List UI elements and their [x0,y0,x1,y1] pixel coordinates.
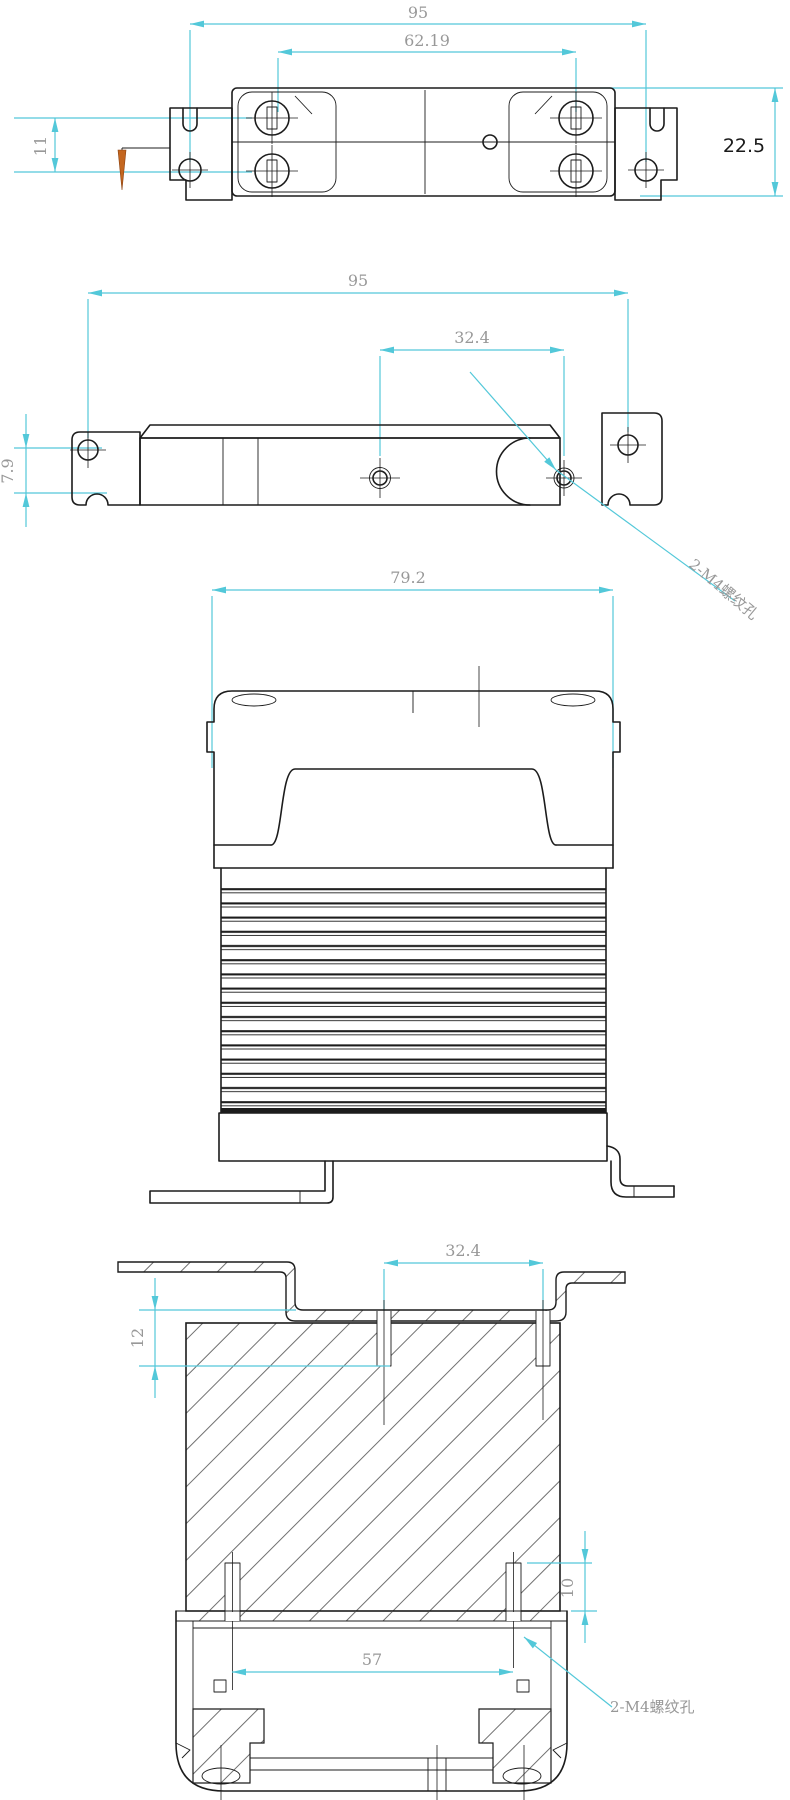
dim-text-12: 12 [128,1328,147,1348]
thread-leader-bottom [470,372,556,470]
terminal-screw [246,145,298,197]
top-left-bracket [170,108,232,200]
section-housing [176,1611,567,1800]
dim-text-324-bottom: 32.4 [454,328,490,347]
dim-text-225: 22.5 [723,135,765,157]
thread-label-section: 2-M4螺纹孔 [610,1698,695,1716]
front-right-slot [551,694,595,706]
section-view: 32.4 12 [118,1241,695,1800]
dim-text-792: 79.2 [390,568,426,587]
housing-square-hole-left [214,1680,226,1692]
housing-post-left [193,1709,264,1783]
front-cover-outline [207,691,620,868]
bottom-top-plate [140,425,560,438]
orange-cursor-marker [118,150,126,190]
terminal-screws [246,92,602,197]
terminal-screw [550,145,602,197]
dim-text-95-bottom: 95 [348,271,368,290]
top-view: 95 62.19 11 22.5 [14,3,783,200]
dim-text-62: 62.19 [404,31,450,50]
dim-text-57: 57 [362,1650,382,1669]
dim-text-324-section: 32.4 [445,1241,481,1260]
front-left-slot [232,694,276,706]
dim-text-11: 11 [31,136,50,156]
heatsink-fins [221,886,606,1112]
bottom-right-bracket [602,413,662,505]
dim-text-10: 10 [558,1578,577,1598]
cad-drawing-canvas: 95 62.19 11 22.5 [0,0,790,1800]
terminal-screw [246,92,298,144]
bottom-boss-arc [497,438,531,505]
thread-leader-section [524,1637,612,1707]
front-right-foot [607,1146,674,1186]
top-right-bracket-slot [650,108,664,131]
dim-text-79: 7.9 [0,458,17,483]
dim-text-95-top: 95 [408,3,428,22]
housing-square-hole-right [517,1680,529,1692]
thread-label-bottom: 2-M4螺纹孔 [685,555,761,623]
front-view: 79.2 [150,568,674,1203]
bottom-view: 95 32.4 7.9 [0,271,762,623]
terminal-screw [550,92,602,144]
front-left-foot [150,1161,333,1203]
heatsink-base-block [219,1113,607,1161]
front-cover-hump [271,769,556,845]
housing-post-right [479,1709,551,1783]
drawing-svg: 95 62.19 11 22.5 [0,0,790,1800]
bottom-left-bracket [72,432,140,505]
